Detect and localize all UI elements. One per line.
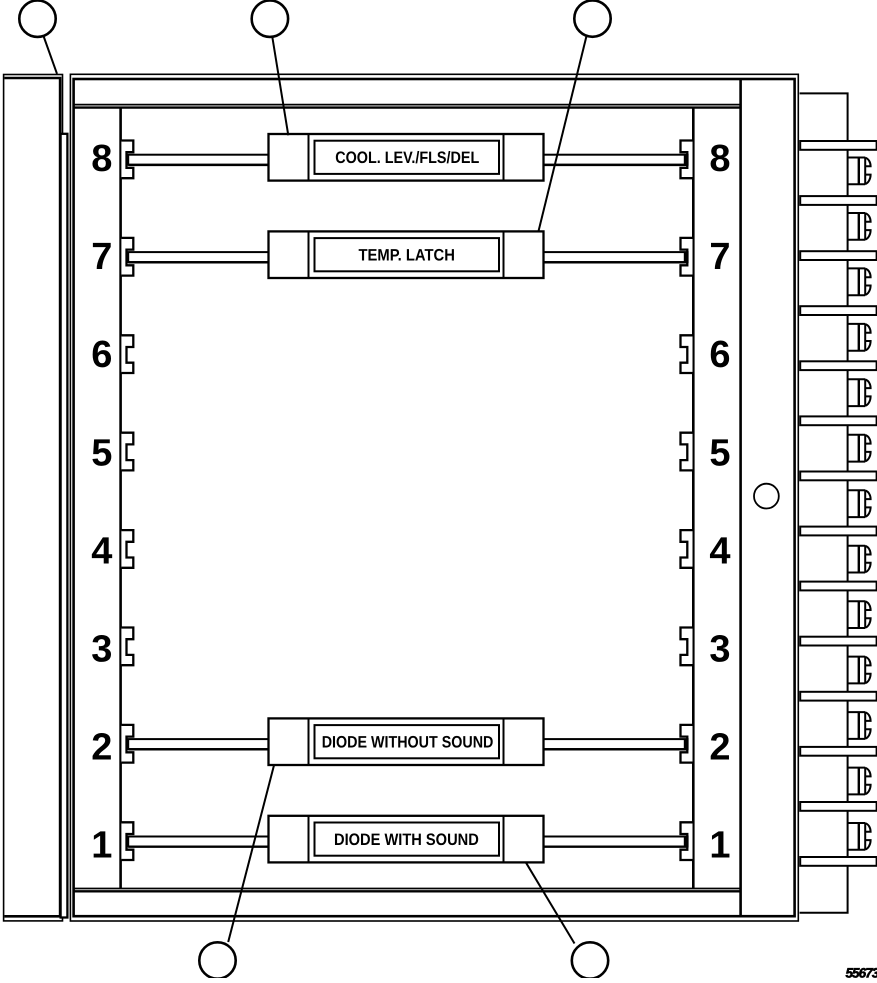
svg-text:DIODE WITH SOUND: DIODE WITH SOUND [334,830,479,849]
svg-text:2: 2 [91,726,112,768]
svg-text:4: 4 [709,530,730,572]
svg-text:1: 1 [709,824,730,866]
svg-text:5: 5 [709,432,730,474]
svg-text:TEMP. LATCH: TEMP. LATCH [359,246,455,265]
svg-text:COOL. LEV./FLS/DEL: COOL. LEV./FLS/DEL [335,148,479,167]
svg-text:7: 7 [709,236,730,278]
svg-text:6: 6 [91,334,112,376]
svg-text:55673: 55673 [845,965,877,978]
svg-text:8: 8 [91,138,112,180]
svg-text:4: 4 [91,530,112,572]
svg-text:2: 2 [709,726,730,768]
svg-text:5: 5 [91,432,112,474]
svg-text:DIODE WITHOUT SOUND: DIODE WITHOUT SOUND [322,733,494,752]
svg-text:1: 1 [91,824,112,866]
svg-text:8: 8 [709,138,730,180]
svg-text:3: 3 [709,628,730,670]
svg-text:7: 7 [91,236,112,278]
svg-text:3: 3 [91,628,112,670]
svg-text:6: 6 [709,334,730,376]
